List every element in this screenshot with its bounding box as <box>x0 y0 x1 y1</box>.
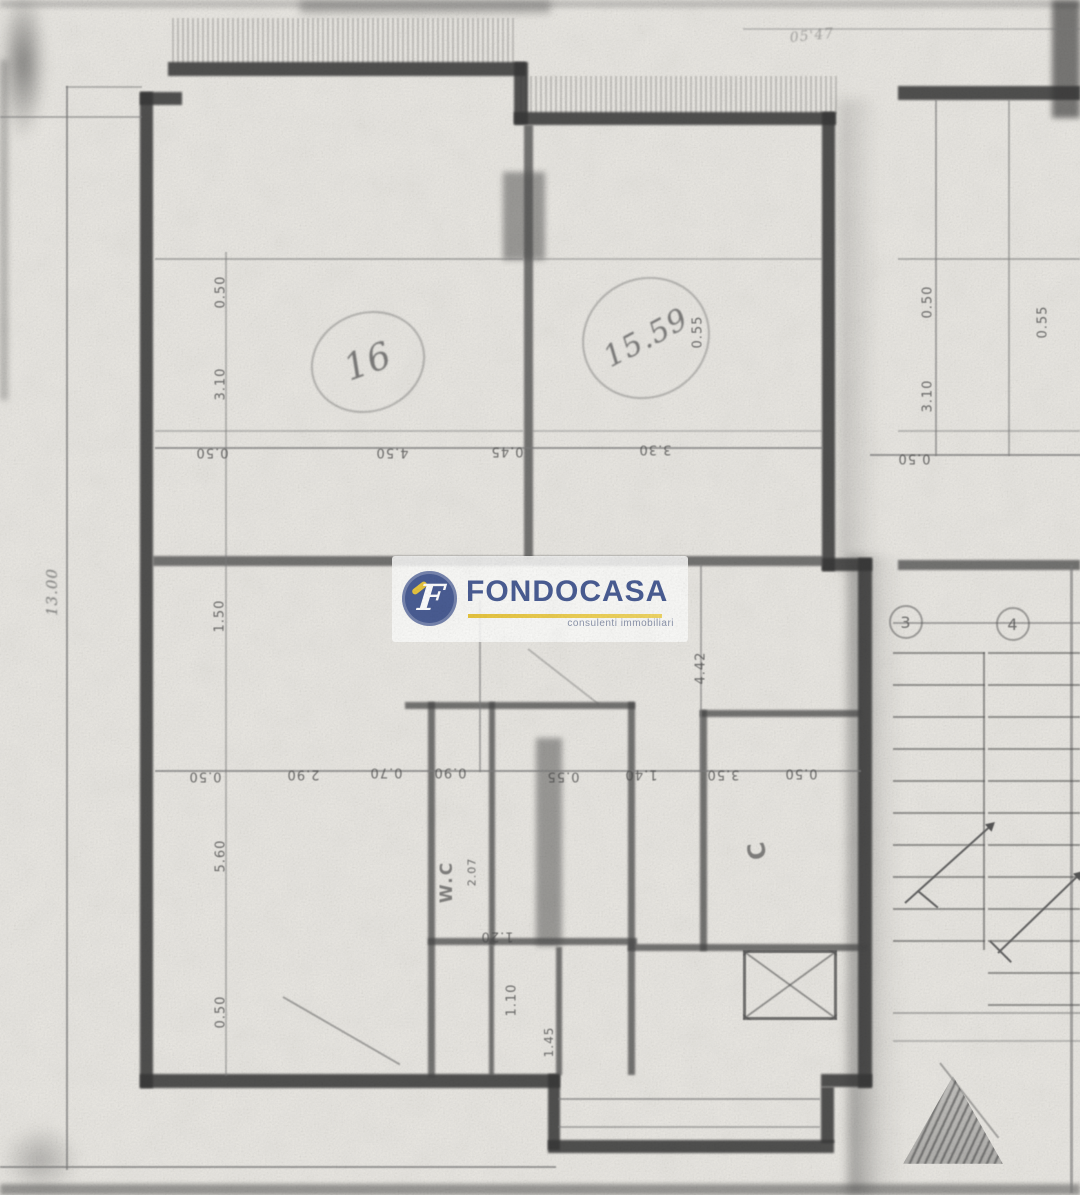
partition-bottom-a <box>556 947 562 1075</box>
grid-marker: 4 <box>996 607 1030 641</box>
dimension-label: 1.45 <box>542 1027 556 1058</box>
wall-texture <box>172 18 517 64</box>
room-label: W.C <box>437 861 457 903</box>
wall-top-left <box>168 62 526 76</box>
room-inner-line <box>155 430 523 432</box>
balcony-line <box>558 1126 820 1128</box>
dimension-label: 5.60 <box>214 840 229 873</box>
wall-wc-left <box>428 702 435 1078</box>
scan-smudge <box>1052 0 1080 118</box>
wall-left <box>140 92 153 1088</box>
fondocasa-badge-icon: F <box>402 571 457 626</box>
stair-flight-left <box>893 652 985 950</box>
dimension-label: 0.50 <box>898 451 931 466</box>
dimension-label: 0.50 <box>214 996 229 1029</box>
dimension-line <box>155 770 861 772</box>
scan-smudge <box>838 100 878 570</box>
scan-smudge <box>0 1125 80 1195</box>
logo-tagline: consulenti immobiliari <box>567 618 674 629</box>
room-inner-line <box>532 430 822 432</box>
dimension-line <box>66 86 142 88</box>
wall-kitchen-top <box>700 710 862 717</box>
room-inner-line <box>155 258 523 260</box>
room-label: C <box>742 838 773 862</box>
dimension-label: 1.20 <box>481 929 514 944</box>
dimension-label: 0.50 <box>785 766 818 781</box>
balcony-wall-right <box>821 1087 834 1143</box>
handwritten-note: 13.00 <box>43 568 61 616</box>
wall-wc-mid <box>489 702 495 945</box>
dimension-label: 4.42 <box>694 652 709 685</box>
badge-f-glyph: F <box>416 577 446 619</box>
logo-brand-text: FONDOCASA <box>466 575 668 609</box>
dimension-line <box>0 1166 556 1168</box>
wall-top-right <box>514 112 836 125</box>
balcony-wall-bottom <box>548 1140 834 1153</box>
wall-bottom-left <box>140 1074 560 1088</box>
wall-hall-right <box>628 702 635 950</box>
fondocasa-watermark: F FONDOCASA consulenti immobiliari <box>392 556 688 642</box>
landing-line <box>893 1040 1080 1042</box>
dimension-label: 0.50 <box>196 445 229 460</box>
scan-smudge <box>0 0 1080 8</box>
wall-right-upper <box>822 112 835 571</box>
room-inner-line <box>532 258 822 260</box>
scan-smudge <box>0 60 8 400</box>
handwritten-note: 16 <box>296 295 439 429</box>
dimension-line <box>0 116 142 118</box>
dimension-line <box>66 86 68 1170</box>
partition-bottom-b <box>628 949 635 1075</box>
handwritten-note: 05'47 <box>789 26 835 47</box>
partition-bottom-c <box>489 945 494 1075</box>
construction-line <box>898 258 1080 260</box>
appliance-box <box>743 950 837 1020</box>
pencil-scribble <box>283 996 401 1065</box>
grid-marker: 3 <box>889 605 923 639</box>
balcony-line <box>558 1098 820 1100</box>
wall-right-unit-mid <box>898 560 1080 570</box>
scan-smudge <box>300 0 550 13</box>
dimension-label: 0.70 <box>370 765 403 780</box>
wall-hall-top <box>405 702 635 709</box>
wall-texture <box>520 76 838 114</box>
dimension-label: 2.07 <box>466 858 479 887</box>
dimension-label: 1.10 <box>505 984 520 1017</box>
dimension-label: 0.90 <box>434 765 467 780</box>
wall-wc-bottom <box>428 938 637 945</box>
dimension-label: 2.90 <box>287 767 320 782</box>
balcony-wall-left <box>548 1074 560 1150</box>
dimension-label: 0.50 <box>189 769 222 784</box>
dimension-label: 1.50 <box>213 600 228 633</box>
dimension-label: 1.40 <box>625 767 658 782</box>
dimension-label: 4.50 <box>376 445 409 460</box>
dimension-label: 0.55 <box>1036 306 1051 339</box>
floor-plan-scan: F FONDOCASA consulenti immobiliari 0.503… <box>0 0 1080 1195</box>
wall-right-lower <box>858 558 872 1088</box>
handwritten-note: 15.59 <box>560 255 731 422</box>
dimension-label: 3.30 <box>639 442 672 457</box>
duct-shaft <box>503 172 545 260</box>
dimension-label: 3.10 <box>214 368 229 401</box>
wall-right-unit-top <box>898 86 1080 100</box>
wall-bottom-right <box>821 1074 872 1087</box>
room-inner-line <box>1008 100 1010 456</box>
pencil-scribble <box>527 648 599 705</box>
triangle-marker <box>903 1076 1003 1164</box>
room-inner-line <box>898 430 1080 432</box>
dimension-label: 0.50 <box>214 276 229 309</box>
scan-smudge <box>0 1184 1080 1195</box>
dimension-label: 0.55 <box>547 769 580 784</box>
dimension-label: 0.50 <box>921 286 936 319</box>
dimension-label: 3.10 <box>921 380 936 413</box>
landing-line <box>893 1012 1080 1014</box>
dimension-label: 0.45 <box>491 444 524 459</box>
dimension-label: 3.50 <box>707 767 740 782</box>
dimension-line <box>155 447 823 449</box>
